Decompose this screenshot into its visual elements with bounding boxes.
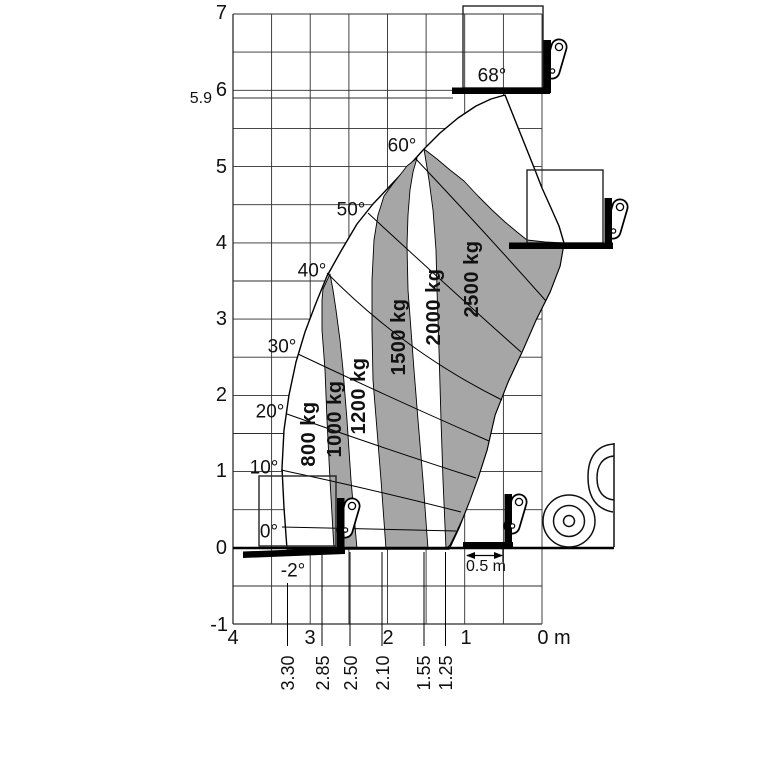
fender-inner	[597, 456, 614, 500]
fork-icon-top	[452, 40, 563, 94]
zone-label-1200: 1200 kg	[349, 358, 369, 435]
angle-50: 50°	[337, 201, 366, 220]
x-label-1: 1	[460, 628, 471, 648]
x-label-2: 2	[382, 628, 393, 648]
y-label-5-9: 5.9	[190, 91, 212, 107]
reach-label-210: 2.10	[374, 655, 392, 690]
angle-30: 30°	[268, 338, 297, 357]
angle-20: 20°	[256, 403, 285, 422]
reach-label-125: 1.25	[437, 655, 455, 690]
fork-dim-label: 0.5 m	[466, 559, 506, 575]
y-label-1: 1	[216, 461, 227, 481]
zone-label-800: 800 kg	[299, 401, 319, 466]
fender-outer	[588, 444, 614, 512]
reach-label-285: 2.85	[314, 655, 332, 690]
angle-neg2: -2°	[281, 562, 306, 581]
y-label-6: 6	[216, 80, 227, 100]
angle-0: 0°	[260, 523, 278, 542]
machine-front	[543, 443, 614, 547]
x-label-3: 3	[304, 628, 315, 648]
angle-40: 40°	[298, 262, 327, 281]
chart-canvas	[0, 0, 768, 768]
reach-label-250: 2.50	[342, 655, 360, 690]
zone-label-2000: 2000 kg	[424, 269, 444, 346]
y-label-2: 2	[216, 385, 227, 405]
y-label-neg1: -1	[210, 615, 228, 635]
reach-label-155: 1.55	[415, 655, 433, 690]
zone-label-1000: 1000 kg	[325, 381, 345, 458]
angle-68: 68°	[478, 67, 507, 86]
zone-label-2500: 2500 kg	[462, 241, 482, 318]
reach-label-330: 3.30	[279, 655, 297, 690]
fork-icon-bottom-right	[463, 494, 523, 549]
y-label-5: 5	[216, 157, 227, 177]
y-label-7: 7	[216, 3, 227, 23]
angle-10: 10°	[250, 459, 279, 478]
x-label-0m: 0 m	[537, 628, 570, 648]
x-label-4: 4	[227, 628, 238, 648]
zone-label-1500: 1500 kg	[389, 299, 409, 376]
y-label-4: 4	[216, 233, 227, 253]
load-capacity-chart: 765.9543210-143210 m-2°0°10°20°30°40°50°…	[0, 0, 768, 768]
angle-60: 60°	[388, 137, 417, 156]
y-label-0: 0	[216, 538, 227, 558]
y-label-3: 3	[216, 309, 227, 329]
